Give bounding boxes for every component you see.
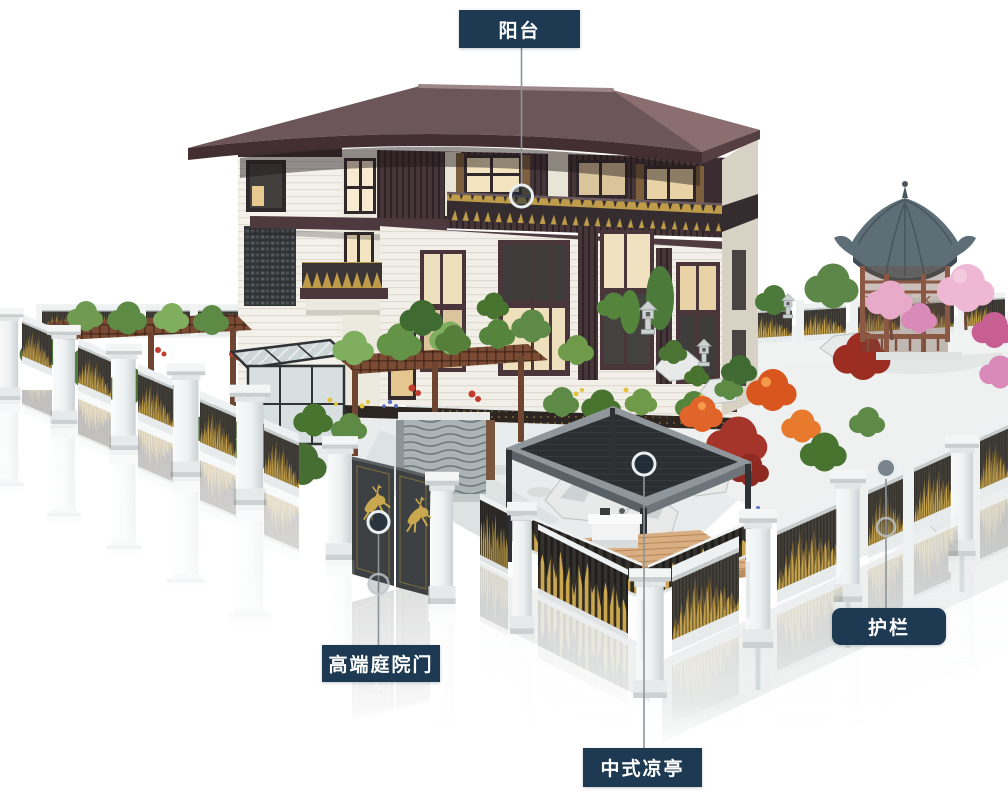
callout-courtyard-gate-label: 高端庭院门 xyxy=(328,650,433,677)
callout-balcony[interactable]: 阳台 xyxy=(459,10,580,48)
villa-scene-illustration xyxy=(0,0,1008,800)
callout-balcony-label: 阳台 xyxy=(498,16,540,43)
side-balcony xyxy=(300,262,388,315)
callout-pavilion-label: 中式凉亭 xyxy=(600,754,684,781)
callout-guardrail-label: 护栏 xyxy=(868,613,910,640)
gate-marker-reflection xyxy=(369,574,389,594)
pavilion-marker[interactable] xyxy=(633,453,655,475)
pavilion-table xyxy=(588,508,642,548)
bottom-fade xyxy=(0,690,1008,800)
gate-marker[interactable] xyxy=(368,512,389,533)
gate-leaf xyxy=(396,468,430,596)
balcony-marker[interactable] xyxy=(511,185,533,207)
villa-annotated-rendering: 阳台 高端庭院门 中式凉亭 护栏 xyxy=(0,0,1008,800)
guardrail-marker[interactable] xyxy=(877,459,896,478)
callout-guardrail[interactable]: 护栏 xyxy=(832,608,946,645)
louver-screen xyxy=(244,226,296,306)
callout-courtyard-gate[interactable]: 高端庭院门 xyxy=(322,645,440,682)
guardrail-marker-reflection xyxy=(877,518,895,536)
callout-pavilion[interactable]: 中式凉亭 xyxy=(583,748,702,787)
